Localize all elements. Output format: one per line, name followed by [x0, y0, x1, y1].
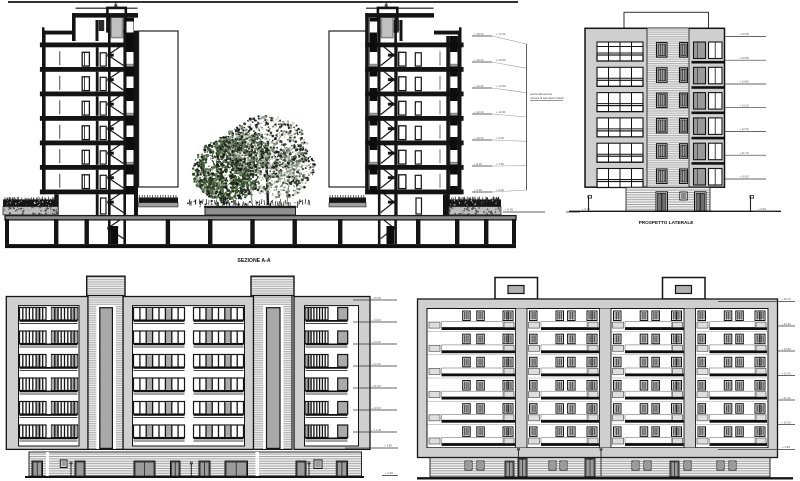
svg-text:+ 11.40: + 11.40 — [371, 384, 381, 388]
svg-text:+ 13.40: + 13.40 — [781, 347, 791, 351]
svg-text:+ 11.70: + 11.70 — [739, 151, 749, 155]
svg-text:+ 14.40: + 14.40 — [371, 318, 381, 322]
svg-text:+ 11.40: + 11.40 — [781, 396, 791, 400]
svg-text:+ 12.10: + 12.10 — [474, 110, 484, 114]
svg-text:+ 7.60: + 7.60 — [496, 162, 504, 166]
svg-text:+ 16.20: + 16.20 — [739, 32, 749, 36]
svg-text:+ 12.40: + 12.40 — [781, 371, 791, 375]
svg-text:+ 9.60: + 9.60 — [496, 136, 504, 140]
svg-text:+ 12.40: + 12.40 — [371, 362, 381, 366]
svg-text:+ 10.40: + 10.40 — [781, 420, 791, 424]
svg-text:SEZIONE A-A: SEZIONE A-A — [237, 258, 270, 264]
svg-text:+ 0.00: + 0.00 — [582, 207, 590, 211]
svg-text:+ 0.00: + 0.00 — [758, 207, 766, 211]
svg-text:+ 13.10: + 13.10 — [739, 103, 749, 107]
svg-text:+ 17.60: + 17.60 — [496, 32, 506, 36]
svg-text:+ 15.50: + 15.50 — [739, 56, 749, 60]
svg-text:+ 14.40: + 14.40 — [781, 322, 791, 326]
svg-text:+ 8.10: + 8.10 — [474, 162, 482, 166]
svg-text:+ 3.80: + 3.80 — [384, 444, 392, 448]
svg-text:PROSPETTO LATERALE: PROSPETTO LATERALE — [639, 220, 694, 225]
svg-text:+ 3.80: + 3.80 — [782, 445, 790, 449]
svg-text:+ 0.00: + 0.00 — [385, 471, 393, 475]
svg-text:+ 14.10: + 14.10 — [474, 84, 484, 88]
svg-text:+ 12.40: + 12.40 — [739, 127, 749, 131]
svg-text:+ 16.10: + 16.10 — [781, 297, 791, 301]
svg-text:+ 10.00: + 10.00 — [739, 175, 749, 179]
svg-text:+ 10.10: + 10.10 — [474, 136, 484, 140]
svg-text:+ 13.60: + 13.60 — [496, 84, 506, 88]
svg-text:+ 11.60: + 11.60 — [496, 110, 506, 114]
svg-text:+ 6.10: + 6.10 — [474, 188, 482, 192]
svg-text:+ 0.00: + 0.00 — [505, 208, 514, 212]
svg-text:+ 10.40: + 10.40 — [371, 406, 381, 410]
svg-text:mimea di parchetti rotturti: mimea di parchetti rotturti — [530, 96, 564, 100]
svg-text:+ 15.40: + 15.40 — [371, 296, 381, 300]
svg-text:+ 14.80: + 14.80 — [739, 80, 749, 84]
svg-text:+ 15.60: + 15.60 — [496, 58, 506, 62]
svg-text:+ 1-1.40: + 1-1.40 — [371, 428, 382, 432]
svg-text:+ 16.10: + 16.10 — [474, 58, 484, 62]
svg-text:+ 18.10: + 18.10 — [474, 32, 484, 36]
svg-text:+ 13.40: + 13.40 — [371, 340, 381, 344]
